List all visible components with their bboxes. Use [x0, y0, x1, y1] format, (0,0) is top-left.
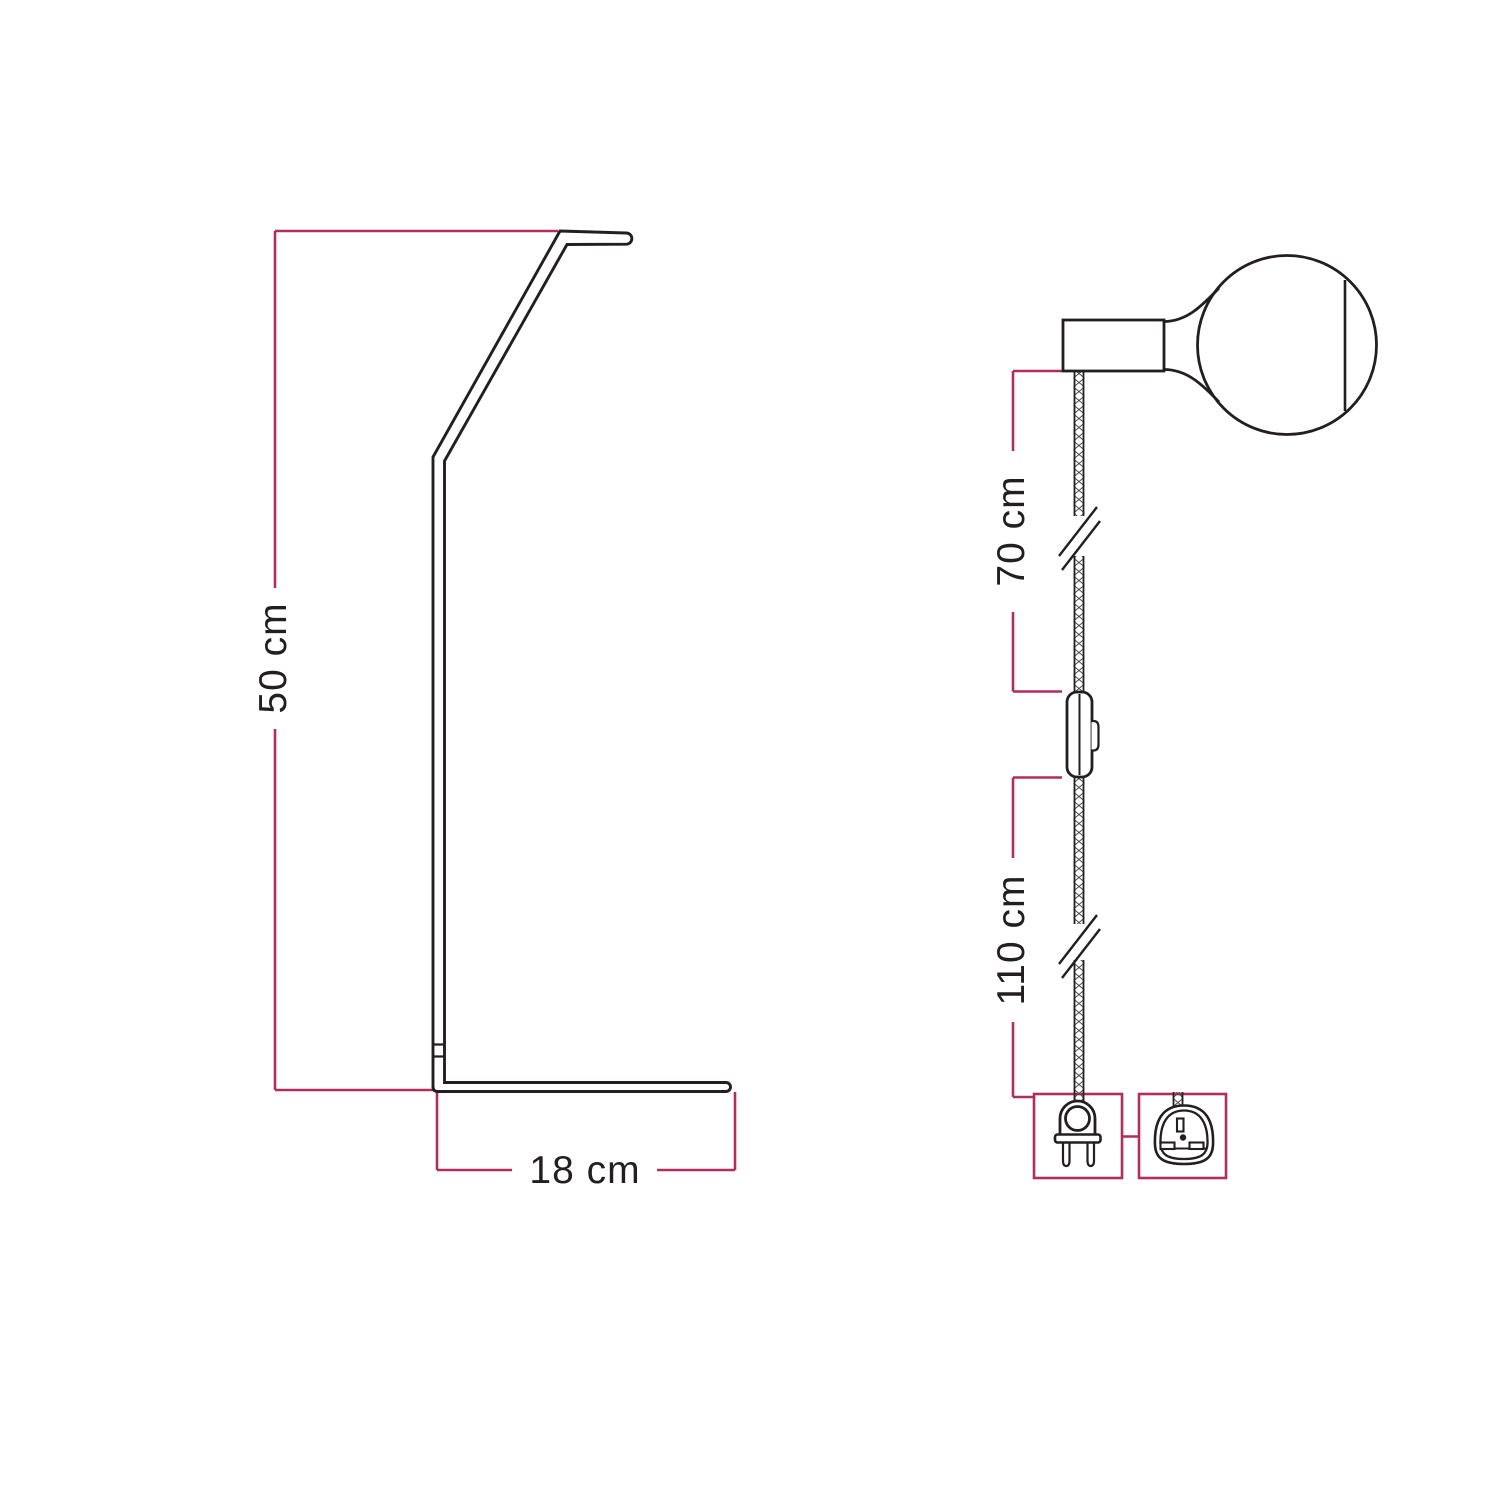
product-dimension-diagram: 50 cm 18 cm 70 cm 110 cm [0, 0, 1500, 1500]
diagram-artwork [0, 0, 1500, 1500]
inline-switch-icon [1067, 692, 1099, 777]
lower-cable-label: 110 cm [990, 875, 1034, 1006]
euro-plug-icon [1055, 1101, 1101, 1166]
stand-dimension-lines [275, 231, 735, 1170]
euro-plug-hole [1066, 1107, 1090, 1131]
cable-segment-lower-b [1074, 960, 1085, 1101]
lamp-socket-icon [1063, 320, 1164, 371]
euro-plug-pin-left [1063, 1143, 1070, 1167]
uk-plug-slot-right [1190, 1143, 1204, 1150]
switch-button [1092, 721, 1099, 751]
upper-cable-label: 70 cm [990, 475, 1034, 586]
stand-base-label: 18 cm [529, 1149, 640, 1193]
uk-plug-slot-left [1161, 1143, 1175, 1150]
uk-plug-icon [1155, 1092, 1213, 1164]
uk-plug-cable-stub [1173, 1092, 1184, 1106]
euro-plug-pin-right [1088, 1143, 1095, 1167]
stand-tube-icon [433, 231, 731, 1092]
stand-height-label: 50 cm [252, 602, 296, 713]
light-bulb-icon [1198, 256, 1377, 435]
cable-segment-upper-b [1074, 556, 1085, 692]
uk-plug-earth-slot [1177, 1119, 1184, 1132]
cable-segment-lower-a [1074, 777, 1085, 924]
uk-plug-center-dot [1180, 1134, 1186, 1140]
cable-segment-upper-a [1074, 371, 1085, 516]
stand-outline [433, 231, 731, 1092]
lamp-head [1063, 256, 1377, 435]
euro-plug-flange [1055, 1135, 1101, 1143]
cable-dimension-lines [1013, 371, 1226, 1178]
